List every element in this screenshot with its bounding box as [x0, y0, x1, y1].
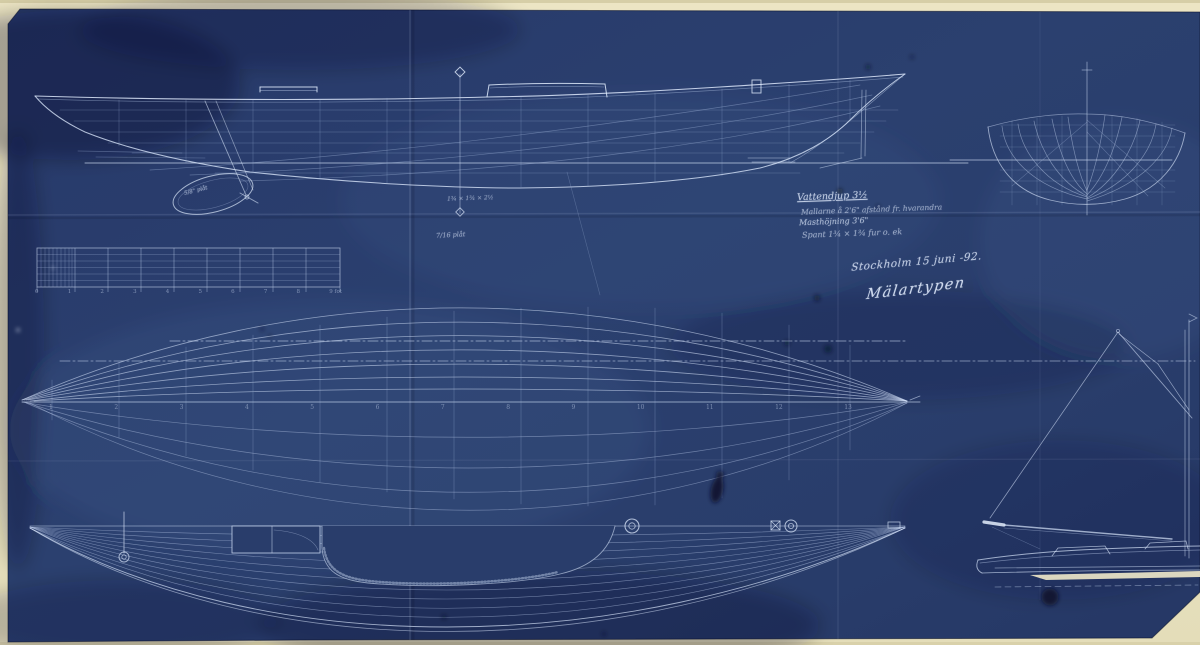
scanned-blueprint-page: Vattendjup 3½ Mallarne å 2'6" afstånd fr…: [0, 0, 1200, 645]
companionway: [232, 526, 320, 553]
blueprint-drawing: [0, 0, 1200, 645]
